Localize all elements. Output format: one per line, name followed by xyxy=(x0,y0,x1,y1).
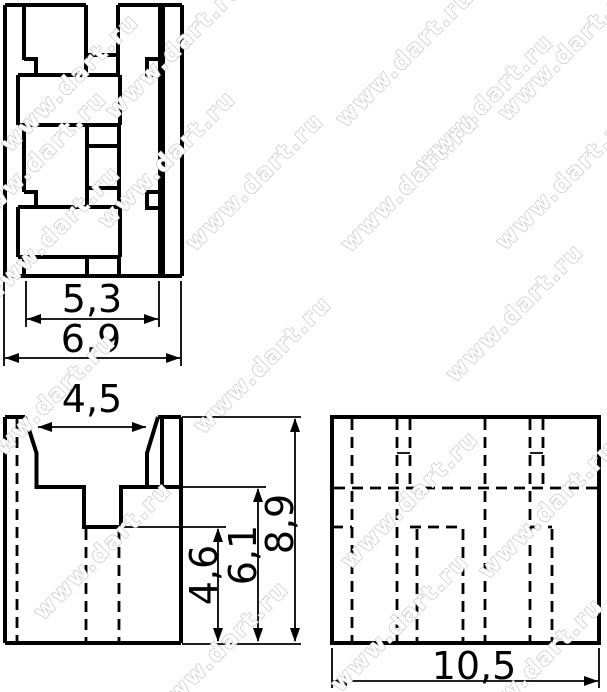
arrowhead xyxy=(290,418,300,432)
watermark-text: www.dart.ru xyxy=(441,239,589,387)
arrowhead xyxy=(584,676,598,686)
dim-label-shelf-depth: 6,1 xyxy=(221,525,265,585)
arrowhead xyxy=(290,628,300,642)
watermark-text: www.dart.ru xyxy=(336,109,484,257)
watermark-text: www.dart.ru xyxy=(474,436,607,584)
drawing-canvas: 5,3 6,9 4,5 8,9 6,1 xyxy=(0,0,607,692)
watermark-text: www.dart.ru xyxy=(491,107,607,255)
watermark-text: www.dart.ru xyxy=(29,477,177,625)
dim-label-inner-width: 5,3 xyxy=(62,277,122,321)
dim-label-recess-depth: 4,6 xyxy=(182,545,226,605)
arrowhead xyxy=(144,314,158,324)
technical-drawing-page: 5,3 6,9 4,5 8,9 6,1 xyxy=(0,0,607,692)
arrowhead xyxy=(27,314,41,324)
arrowhead xyxy=(166,353,180,363)
arrowhead xyxy=(132,422,146,432)
watermark-layer: www.dart.ru www.dart.ru www.dart.ru www.… xyxy=(0,0,607,692)
arrowhead xyxy=(5,353,19,363)
